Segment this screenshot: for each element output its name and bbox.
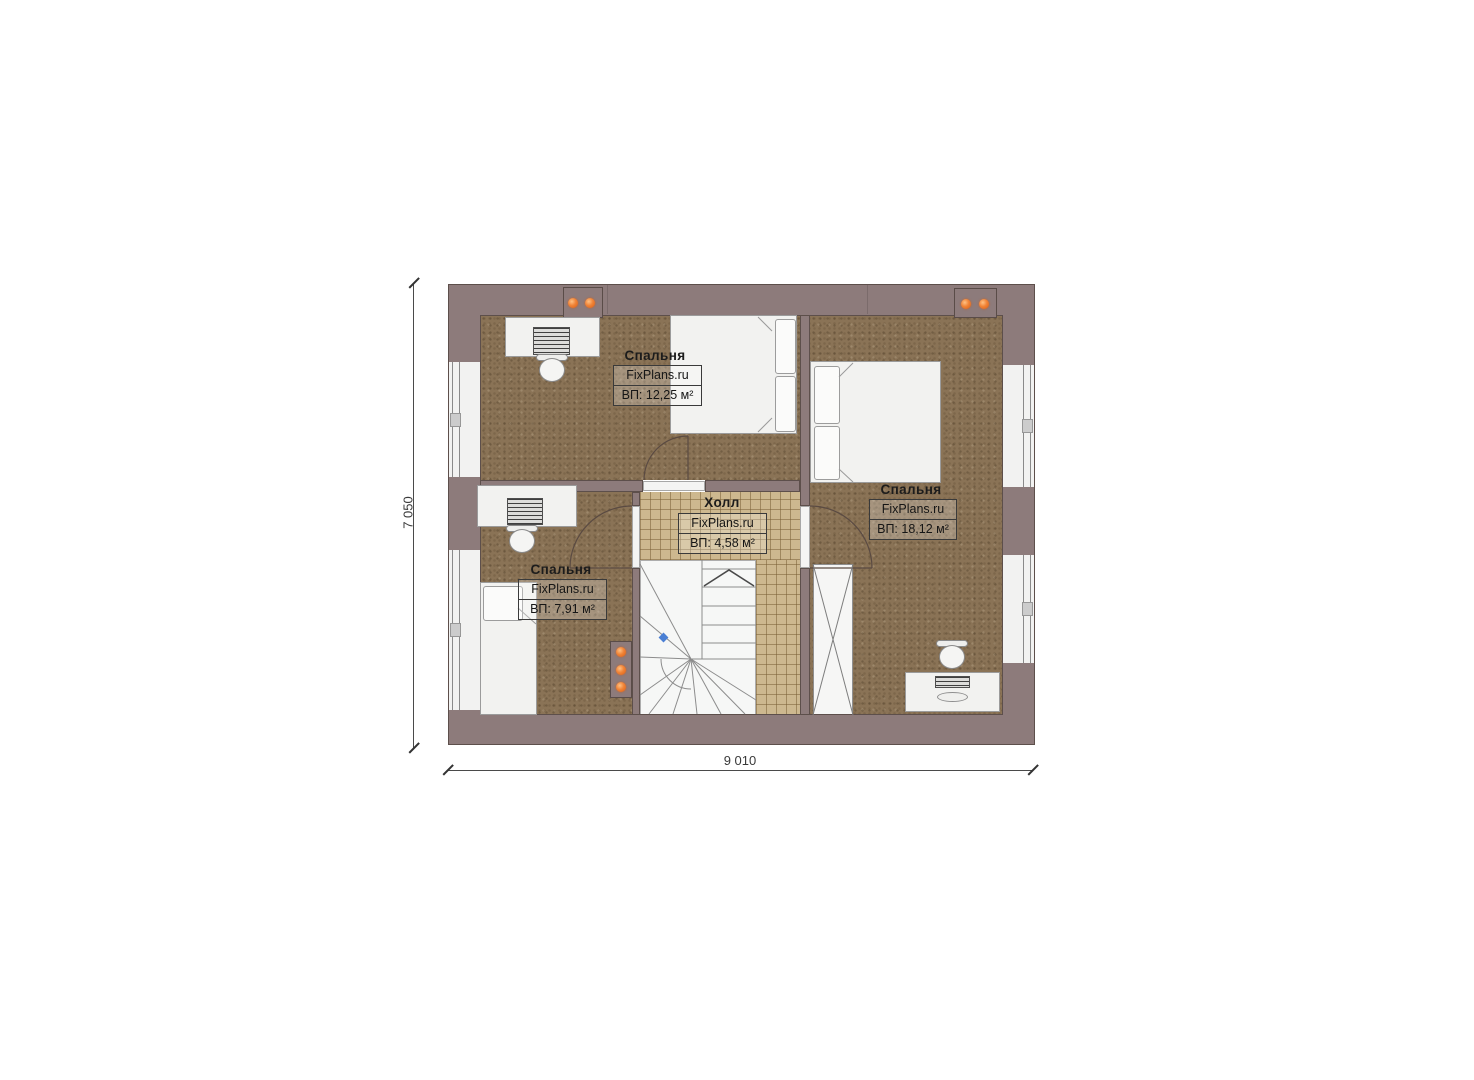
area-label: ВП: 18,12 м²: [870, 519, 956, 539]
wall-top: [448, 284, 1035, 315]
floor-hall-tiles-strip: [756, 560, 800, 715]
width-dimension-label: 9 010: [700, 753, 780, 768]
brand-label: FixPlans.ru: [614, 366, 701, 385]
dimension-tick-icon: [409, 277, 420, 288]
room-label-bedroom-right: Спальня: [851, 482, 971, 497]
window-left-top: [449, 362, 480, 477]
office-chair: [539, 358, 565, 382]
window-mullion: [450, 413, 461, 427]
bed-right: [810, 361, 941, 483]
wall-interior-vertical-main-lower: [800, 568, 810, 715]
pillow: [814, 366, 840, 424]
window-right-top: [1003, 365, 1034, 487]
area-label: ВП: 7,91 м²: [519, 599, 606, 619]
pillow: [775, 376, 796, 432]
vent-dot-icon: [585, 298, 595, 308]
wall-interior-horizontal-east: [705, 480, 800, 492]
brand-label: FixPlans.ru: [679, 514, 766, 533]
wall-interior-vertical-main-upper: [800, 315, 810, 506]
room-info-box-bedroom-bottom-left: FixPlans.ru ВП: 7,91 м²: [518, 579, 607, 620]
window-right-bottom: [1003, 555, 1034, 663]
computer-monitor-icon: [533, 327, 570, 355]
wall-right: [1003, 284, 1035, 745]
laptop-icon: [935, 676, 970, 688]
brand-label: FixPlans.ru: [870, 500, 956, 519]
vent-dot-icon: [616, 682, 626, 692]
window-left-bottom: [449, 550, 480, 710]
room-label-bedroom-top-left: Спальня: [595, 348, 715, 363]
brand-label: FixPlans.ru: [519, 580, 606, 599]
room-info-box-bedroom-right: FixPlans.ru ВП: 18,12 м²: [869, 499, 957, 540]
vent-dot-icon: [616, 665, 626, 675]
wall-bottom: [448, 715, 1035, 745]
door-opening-top: [643, 481, 705, 491]
area-label: ВП: 12,25 м²: [614, 385, 701, 405]
wall-joint-line: [867, 285, 868, 314]
vent-dot-icon: [961, 299, 971, 309]
room-info-box-bedroom-top-left: FixPlans.ru ВП: 12,25 м²: [613, 365, 702, 406]
door-opening-hall-left: [632, 506, 640, 568]
window-mullion: [1022, 419, 1033, 433]
vent-dot-icon: [568, 298, 578, 308]
pillow: [775, 319, 796, 374]
room-label-bedroom-bottom-left: Спальня: [501, 562, 621, 577]
dimension-tick-icon: [409, 742, 420, 753]
window-mullion: [1022, 602, 1033, 616]
staircase-area: [640, 560, 756, 715]
office-chair: [509, 529, 535, 553]
pillow: [483, 586, 523, 621]
area-label: ВП: 4,58 м²: [679, 533, 766, 553]
wall-hall-left-upper: [632, 492, 640, 506]
wall-hall-left-lower: [632, 568, 640, 715]
window-mullion: [450, 623, 461, 637]
computer-monitor-icon: [507, 498, 543, 525]
office-chair: [939, 645, 965, 669]
vent-dot-icon: [616, 647, 626, 657]
keyboard-icon: [937, 692, 968, 702]
vent-dot-icon: [979, 299, 989, 309]
door-opening-hall-right: [800, 506, 810, 568]
height-dimension-label: 7 050: [401, 483, 416, 543]
room-label-hall: Холл: [662, 495, 782, 510]
room-info-box-hall: FixPlans.ru ВП: 4,58 м²: [678, 513, 767, 554]
pillow: [814, 426, 840, 480]
wall-joint-line: [607, 285, 608, 314]
floor-plan-page: 7 050 9 010: [0, 0, 1474, 1080]
horizontal-dimension-line: [448, 770, 1033, 771]
wardrobe: [813, 564, 853, 715]
floor-plan: Спальня FixPlans.ru ВП: 12,25 м² Спальня…: [448, 284, 1035, 745]
